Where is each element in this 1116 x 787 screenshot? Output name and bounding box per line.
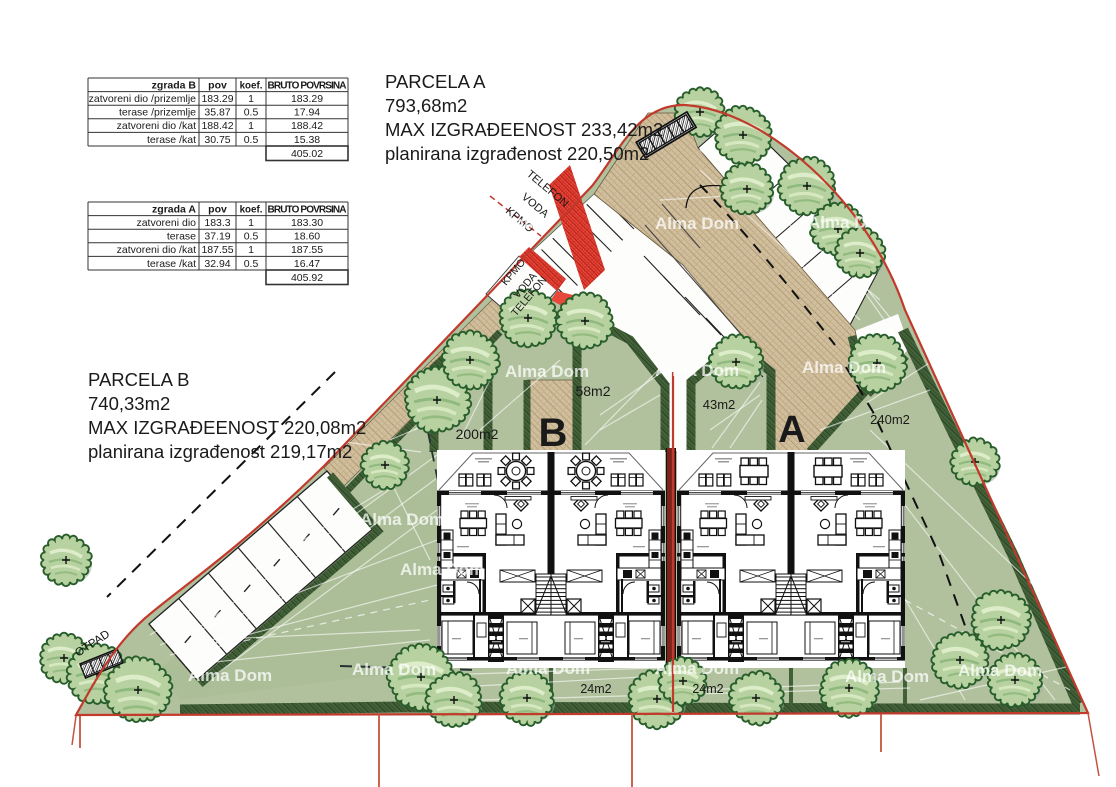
svg-text:240m2: 240m2 bbox=[870, 412, 910, 427]
svg-text:35.87: 35.87 bbox=[204, 107, 230, 119]
svg-text:37.19: 37.19 bbox=[204, 231, 230, 243]
svg-text:zgrada B: zgrada B bbox=[152, 79, 197, 91]
svg-text:0.5: 0.5 bbox=[244, 134, 259, 146]
svg-text:A: A bbox=[778, 409, 805, 451]
svg-text:405.02: 405.02 bbox=[291, 148, 323, 160]
svg-text:740,33m2: 740,33m2 bbox=[88, 393, 170, 414]
svg-text:Alma Dom: Alma Dom bbox=[506, 659, 590, 678]
svg-text:183.29: 183.29 bbox=[201, 93, 233, 105]
svg-text:43m2: 43m2 bbox=[703, 397, 736, 412]
svg-text:188.42: 188.42 bbox=[291, 120, 323, 132]
svg-text:terase /prizemlje: terase /prizemlje bbox=[119, 107, 196, 119]
svg-text:PARCELA A: PARCELA A bbox=[385, 71, 486, 92]
svg-text:zatvoreni dio /prizemlje: zatvoreni dio /prizemlje bbox=[89, 93, 197, 105]
svg-text:0.5: 0.5 bbox=[244, 231, 259, 243]
svg-text:BRUTO POVRSINA: BRUTO POVRSINA bbox=[268, 80, 347, 91]
svg-text:koef.: koef. bbox=[240, 204, 263, 215]
svg-text:17.94: 17.94 bbox=[294, 107, 320, 119]
svg-text:PARCELA B: PARCELA B bbox=[88, 369, 189, 390]
svg-text:MAX IZGRAĐEENOST 233,42m2: MAX IZGRAĐEENOST 233,42m2 bbox=[385, 119, 663, 140]
svg-text:Alma Dom: Alma Dom bbox=[455, 213, 539, 232]
svg-text:Alma Dom: Alma Dom bbox=[655, 361, 739, 380]
svg-text:Alma Dom: Alma Dom bbox=[352, 660, 436, 679]
svg-text:188.42: 188.42 bbox=[201, 120, 233, 132]
svg-text:Alma Dom: Alma Dom bbox=[505, 362, 589, 381]
svg-text:terase /kat: terase /kat bbox=[147, 134, 196, 146]
svg-text:Alma Dom: Alma Dom bbox=[655, 659, 739, 678]
svg-text:Alma Dom: Alma Dom bbox=[188, 666, 272, 685]
svg-text:200m2: 200m2 bbox=[456, 426, 499, 442]
svg-text:1: 1 bbox=[248, 217, 254, 229]
svg-text:planirana izgrađenost 219,17m2: planirana izgrađenost 219,17m2 bbox=[88, 441, 352, 462]
svg-text:0.5: 0.5 bbox=[244, 258, 259, 270]
svg-text:Alma Dom: Alma Dom bbox=[360, 510, 444, 529]
svg-text:1: 1 bbox=[248, 244, 254, 256]
svg-text:Alma Dom: Alma Dom bbox=[655, 214, 739, 233]
svg-text:32.94: 32.94 bbox=[204, 258, 230, 270]
svg-text:30.75: 30.75 bbox=[204, 134, 230, 146]
svg-text:Alma Dom: Alma Dom bbox=[958, 661, 1042, 680]
svg-text:Alma Dom: Alma Dom bbox=[400, 560, 484, 579]
svg-text:BRUTO POVRSINA: BRUTO POVRSINA bbox=[268, 204, 347, 215]
svg-text:187.55: 187.55 bbox=[201, 244, 233, 256]
svg-text:Alma Dom: Alma Dom bbox=[845, 667, 929, 686]
svg-text:pov: pov bbox=[208, 203, 227, 215]
svg-text:18.60: 18.60 bbox=[294, 231, 320, 243]
svg-text:183.29: 183.29 bbox=[291, 93, 323, 105]
svg-text:187.55: 187.55 bbox=[291, 244, 323, 256]
svg-text:183.30: 183.30 bbox=[291, 217, 323, 229]
svg-text:15.38: 15.38 bbox=[294, 134, 320, 146]
svg-text:B: B bbox=[539, 411, 568, 455]
svg-text:planirana izgrađenost 220,50m2: planirana izgrađenost 220,50m2 bbox=[385, 143, 649, 164]
svg-text:1: 1 bbox=[248, 120, 254, 132]
svg-text:405.92: 405.92 bbox=[291, 272, 323, 284]
svg-text:Alma Dom: Alma Dom bbox=[808, 213, 892, 232]
svg-text:0.5: 0.5 bbox=[244, 107, 259, 119]
svg-text:zatvoreni dio /kat: zatvoreni dio /kat bbox=[117, 244, 196, 256]
svg-text:Alma Dom: Alma Dom bbox=[802, 358, 886, 377]
svg-text:1: 1 bbox=[248, 93, 254, 105]
svg-text:zatvoreni dio: zatvoreni dio bbox=[136, 217, 196, 229]
svg-text:zatvoreni dio /kat: zatvoreni dio /kat bbox=[117, 120, 196, 132]
svg-text:terase /kat: terase /kat bbox=[147, 258, 196, 270]
svg-text:terase: terase bbox=[167, 231, 196, 243]
svg-text:16.47: 16.47 bbox=[294, 258, 320, 270]
svg-text:MAX IZGRAĐEENOST 220,08m2: MAX IZGRAĐEENOST 220,08m2 bbox=[88, 417, 366, 438]
svg-text:24m2: 24m2 bbox=[580, 682, 611, 696]
svg-text:183.3: 183.3 bbox=[204, 217, 230, 229]
svg-text:793,68m2: 793,68m2 bbox=[385, 95, 467, 116]
svg-text:pov: pov bbox=[208, 79, 227, 91]
svg-text:zgrada A: zgrada A bbox=[152, 203, 196, 215]
svg-text:58m2: 58m2 bbox=[575, 383, 610, 399]
svg-text:24m2: 24m2 bbox=[692, 682, 723, 696]
svg-text:koef.: koef. bbox=[240, 80, 263, 91]
